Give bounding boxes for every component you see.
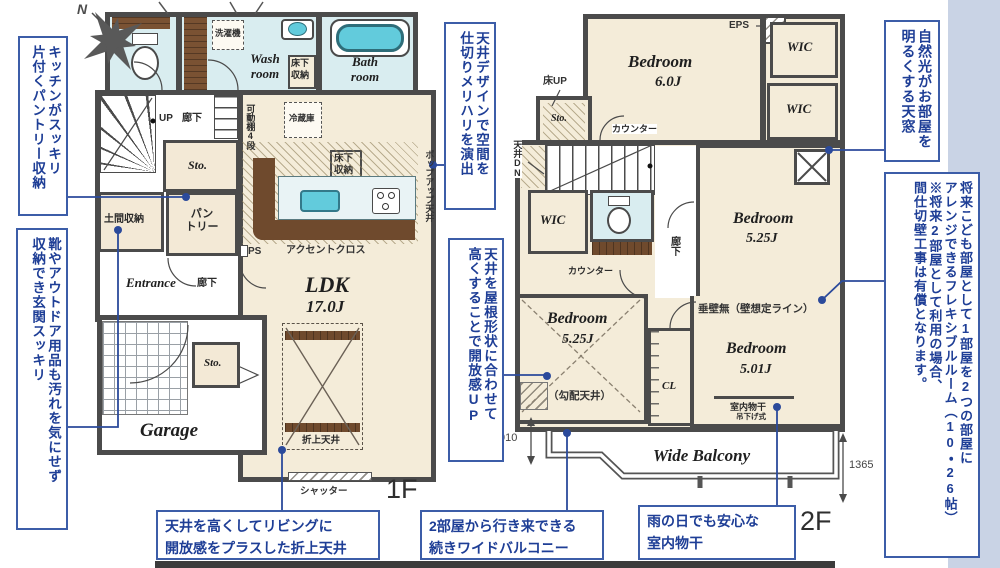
washbasin-bowl-1f bbox=[288, 22, 307, 36]
bedroom501-size: 5.01J bbox=[740, 362, 772, 378]
hallway-2f bbox=[655, 146, 697, 298]
bathtub bbox=[336, 24, 404, 52]
bedroom501-name: Bedroom bbox=[726, 340, 786, 358]
callout-skylight: 自然光がお部屋を 明るくする天窓 bbox=[884, 20, 940, 162]
dim-1365-label: 1365 bbox=[849, 459, 873, 472]
bedroom6-size: 6.0J bbox=[655, 74, 681, 91]
underfloor-storage-top-label: 床下収納 bbox=[291, 58, 313, 81]
washing-machine-label: 洗濯機 bbox=[215, 29, 241, 39]
ldk-name-label: LDK bbox=[305, 272, 349, 297]
up-label: UP bbox=[159, 113, 173, 125]
shutter-opening bbox=[288, 472, 372, 481]
entrance-label: Entrance bbox=[126, 276, 176, 291]
toilet-bowl-1f bbox=[131, 46, 159, 80]
wic-mid-label: WIC bbox=[786, 102, 811, 117]
callout-sloped-ceiling: 天井を屋根形状に合わせて 高くすることで開放感UP bbox=[448, 238, 504, 462]
skylight-box bbox=[794, 149, 830, 185]
sloped-ceiling-label: （勾配天井） bbox=[548, 390, 611, 402]
floorplan-page: 洗濯機 Wash room 床下収納 Bath room UP 廊下 Sto. … bbox=[0, 0, 1000, 568]
bedroom525l-size: 5.25J bbox=[562, 332, 594, 348]
bedroom525r-name: Bedroom bbox=[733, 210, 793, 228]
bottom-photo-edge-bar bbox=[155, 561, 835, 568]
no-wall-label: 垂壁無（壁想定ライン） bbox=[698, 303, 814, 315]
storage-2f-label: Sto. bbox=[551, 113, 567, 125]
balcony-label: Wide Balcony bbox=[653, 446, 750, 466]
wall-toilet-1f bbox=[176, 15, 182, 92]
doma-storage-label: 土間収納 bbox=[104, 214, 144, 226]
stairs-upper-flight-1f bbox=[214, 95, 238, 139]
toilet-bowl-2f bbox=[607, 207, 631, 234]
callout-flexible-room: 将来こども部屋として1部屋を2つの部屋に アレンジできるフレキシブルルーム（10… bbox=[884, 172, 980, 558]
eps-label: EPS bbox=[729, 20, 749, 32]
hanging-type-label: 吊下げ式 bbox=[736, 413, 766, 422]
bedroom525l-name: Bedroom bbox=[547, 310, 607, 328]
coffered-beam-bottom bbox=[285, 423, 360, 432]
floor-up-label: 床UP bbox=[543, 76, 567, 88]
counter-mid-label: カウンター bbox=[568, 266, 613, 276]
stove-burner-2 bbox=[388, 192, 395, 199]
floor-label-2f: 2F bbox=[800, 506, 832, 537]
stairwell-hatch-2f bbox=[521, 146, 545, 188]
ldk-size-label: 17.0J bbox=[306, 297, 344, 317]
counter-top-label: カウンター bbox=[612, 124, 657, 134]
stove-burner-1 bbox=[377, 192, 384, 199]
callout-wide-balcony: 2部屋から行き来できる 続きワイドバルコニー bbox=[420, 510, 604, 560]
indoor-drying-label: 室内物干 bbox=[730, 402, 766, 412]
toilet-tank-1f bbox=[132, 33, 158, 45]
bedroom525r-size: 5.25J bbox=[746, 231, 778, 247]
bath-room-label: Bath room bbox=[335, 55, 395, 85]
storage-upper-label: Sto. bbox=[188, 159, 207, 173]
stairs-2f bbox=[545, 145, 655, 195]
hallway-mid-label: 廊下 bbox=[197, 278, 217, 290]
floor-label-1f: 1F bbox=[386, 474, 418, 505]
coffered-beam-top bbox=[285, 331, 360, 340]
callout-pantry: キッチンがスッキリ 片付くパントリー収納 bbox=[18, 36, 68, 216]
callout-doma: 靴やアウトドア用品も汚れを気にせず 収納でき玄関スッキリ bbox=[16, 228, 68, 530]
hallway-top-label: 廊下 bbox=[182, 113, 202, 125]
compass-n-label: N bbox=[77, 1, 87, 17]
callout-indoor-drying: 雨の日でも安心な 室内物干 bbox=[638, 505, 796, 560]
popup-ceiling-label: ポップアップ天井 bbox=[424, 150, 434, 222]
coffered-ceiling-label: 折上天井 bbox=[300, 436, 342, 447]
ps-label: PS bbox=[248, 246, 261, 258]
accent-cross-label: アクセントクロス bbox=[286, 245, 366, 257]
shutter-label: シャッター bbox=[300, 487, 348, 498]
garage-label: Garage bbox=[140, 420, 198, 442]
stairs-1f bbox=[100, 95, 156, 173]
toilet-tank-2f bbox=[608, 196, 630, 206]
cl-label: CL bbox=[662, 380, 676, 393]
sloped-corner-hatch bbox=[520, 382, 548, 410]
counter-2f bbox=[592, 242, 652, 255]
callout-coffered-ceiling: 天井を高くしてリビングに 開放感をプラスした折上天井 bbox=[156, 510, 380, 560]
wic-left-label: WIC bbox=[540, 213, 565, 228]
stove-burner-3 bbox=[382, 203, 389, 210]
storage-lower-label: Sto. bbox=[204, 357, 221, 370]
ceiling-dn-label: 天井DN bbox=[512, 140, 522, 178]
wash-room-label: Wash room bbox=[235, 52, 295, 82]
kitchen-sink bbox=[300, 190, 340, 212]
wall-bath-1f bbox=[316, 15, 322, 92]
closet-cl bbox=[648, 328, 694, 426]
fridge-label: 冷蔵庫 bbox=[289, 114, 315, 124]
drying-bar bbox=[714, 396, 794, 399]
callout-ceiling-design: 天井デザインで空間を 仕切りメリハリを演出 bbox=[444, 22, 496, 210]
toilet-shelf-1f bbox=[112, 17, 170, 29]
pantry-label: パン トリー bbox=[184, 208, 220, 233]
wic-top-label: WIC bbox=[787, 40, 812, 55]
ps-box bbox=[240, 245, 248, 257]
kitchen-stove bbox=[372, 188, 400, 214]
linen-shelf-1f bbox=[184, 17, 207, 92]
bedroom6-name: Bedroom bbox=[628, 52, 692, 72]
hallway-2f-label: 廊下 bbox=[668, 236, 680, 256]
garage-gate-grid bbox=[102, 321, 188, 415]
